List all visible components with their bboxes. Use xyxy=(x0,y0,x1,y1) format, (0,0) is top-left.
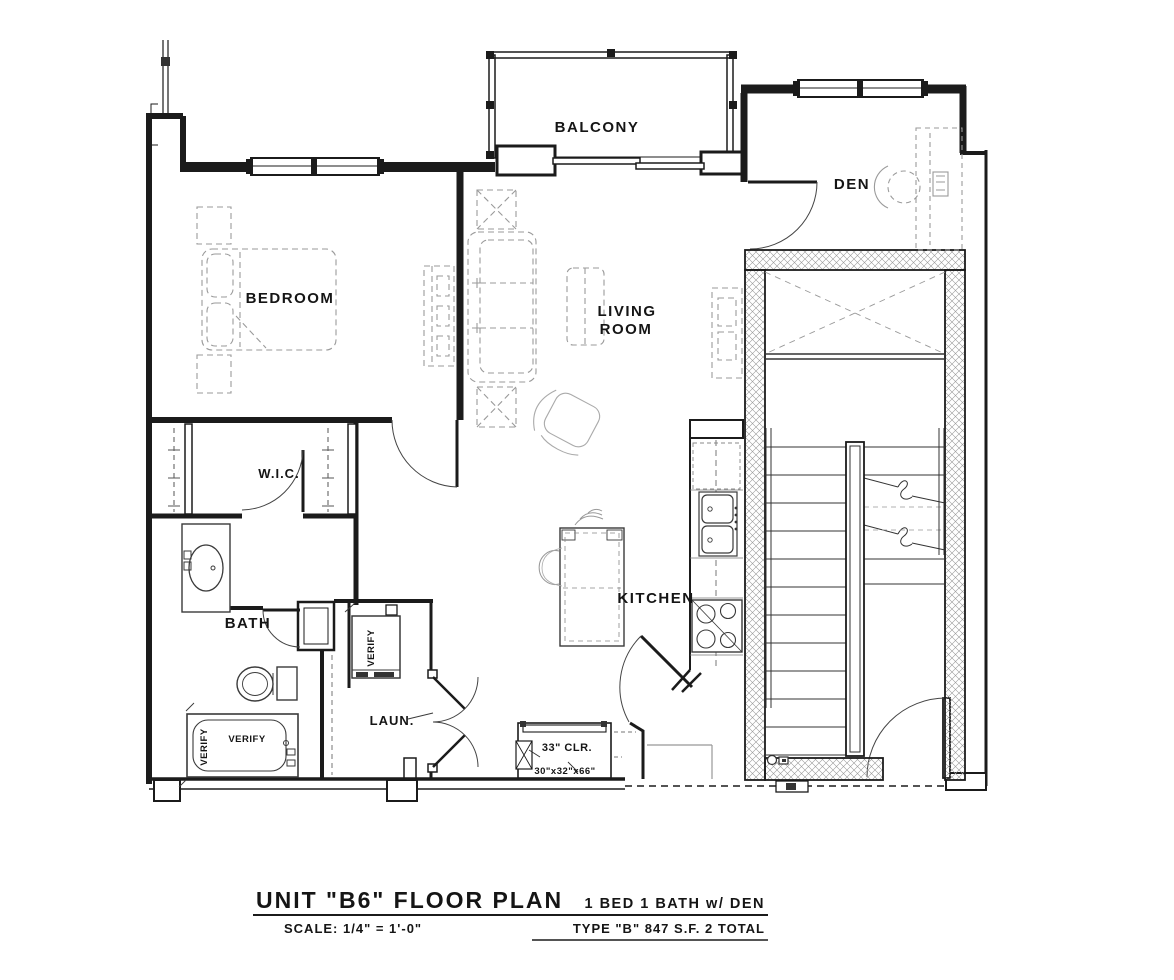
clearance-label: 33" CLR. xyxy=(542,742,592,754)
stairwell xyxy=(745,250,965,780)
interior-walls xyxy=(152,170,712,779)
verify-tub-vertical-label: VERIFY xyxy=(199,728,210,765)
living-room-label-line1: LIVING xyxy=(597,303,656,320)
laundry-appliance xyxy=(345,603,433,719)
kitchen-label: KITCHEN xyxy=(617,590,694,607)
bath-fixtures xyxy=(179,524,298,787)
floor-plan-page: BALCONY DEN BEDROOM LIVING ROOM W.I.C. B… xyxy=(0,0,1174,980)
wic-label: W.I.C. xyxy=(258,466,299,481)
living-room-label-line2: ROOM xyxy=(600,321,653,338)
floor-plan-drawing: BALCONY DEN BEDROOM LIVING ROOM W.I.C. B… xyxy=(0,0,1174,980)
den-label: DEN xyxy=(834,176,870,193)
verify-tub-label: VERIFY xyxy=(228,734,265,745)
plan-summary: 1 BED 1 BATH w/ DEN xyxy=(584,896,765,912)
plan-scale: SCALE: 1/4" = 1'-0" xyxy=(284,921,422,936)
laundry-label: LAUN. xyxy=(370,713,415,728)
bath-label: BATH xyxy=(225,615,272,632)
armchair xyxy=(524,383,603,460)
balcony-structure xyxy=(486,49,742,175)
balcony-label: BALCONY xyxy=(555,119,640,136)
plan-title: UNIT "B6" FLOOR PLAN xyxy=(256,887,563,913)
plan-type-info: TYPE "B" 847 S.F. 2 TOTAL xyxy=(573,921,765,936)
bedroom-label: BEDROOM xyxy=(246,290,335,307)
den-furniture xyxy=(874,128,962,250)
water-heater-size-label: 30"x32"x66" xyxy=(534,766,595,777)
title-block: UNIT "B6" FLOOR PLAN 1 BED 1 BATH w/ DEN… xyxy=(253,887,768,940)
verify-washer-label: VERIFY xyxy=(366,629,377,666)
kitchen-fixtures xyxy=(539,420,743,690)
